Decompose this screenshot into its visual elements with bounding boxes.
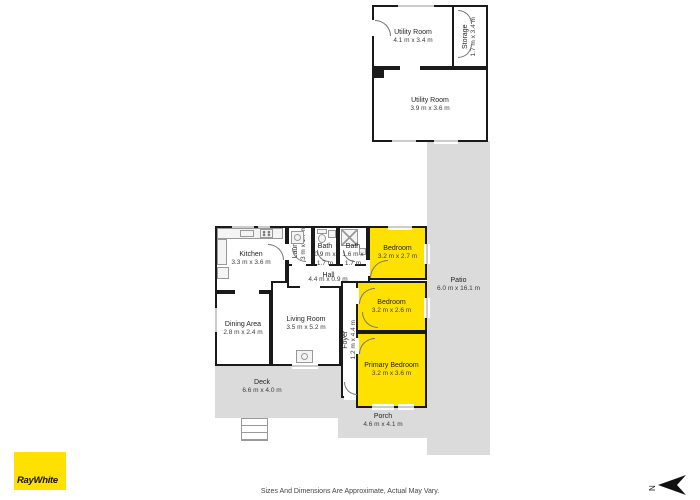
room-name: Kitchen — [231, 250, 270, 259]
raywhite-logo: RayWhite — [14, 452, 66, 490]
floorplan-canvas: Patio 6.0 m x 16.1 m Porch 4.6 m x 4.1 m… — [0, 0, 700, 500]
window — [398, 404, 414, 410]
deck-area — [215, 366, 341, 418]
room-utility-b: Utility Room 3.9 m x 3.6 m — [372, 68, 488, 142]
stove-fixture — [260, 229, 273, 238]
room-dims: 3.3 m x 3.6 m — [231, 259, 270, 267]
toilet-bowl-fixture — [318, 234, 326, 243]
sliding-door — [292, 363, 318, 369]
door-opening — [300, 284, 320, 288]
patio-area — [427, 141, 490, 455]
door-opening — [317, 262, 329, 266]
room-bedroom-2: Bedroom 3.2 m x 2.6 m — [356, 281, 427, 332]
room-name: Bedroom — [378, 244, 417, 253]
fridge-fixture — [217, 267, 229, 279]
front-door-opening — [344, 395, 356, 400]
room-dims: 4.1 m x 3.4 m — [393, 37, 432, 45]
window — [424, 244, 430, 264]
door-opening — [235, 290, 259, 294]
room-name: Bedroom — [372, 298, 411, 307]
window — [213, 308, 219, 332]
sink-fixture — [240, 230, 254, 237]
shower-fixture — [341, 229, 358, 246]
room-dining: Dining Area 2.8 m x 2.4 m — [215, 292, 271, 366]
door-opening — [285, 244, 289, 260]
window — [434, 138, 458, 144]
room-dims: 2.8 m x 2.4 m — [223, 329, 262, 337]
door-opening — [400, 66, 420, 71]
deck-stairs — [241, 418, 268, 441]
room-dims: 3.9 m x 3.6 m — [410, 105, 449, 113]
room-name: Foyer — [341, 320, 350, 359]
sink-fixture — [359, 248, 366, 255]
room-name: Hall — [322, 271, 334, 280]
room-dims: 3.5 m x 5.2 m — [286, 324, 325, 332]
north-arrow-icon: N — [645, 472, 689, 500]
wall-stub — [372, 70, 384, 78]
window — [388, 224, 412, 230]
room-utility-a: Utility Room 4.1 m x 3.4 m — [372, 5, 454, 68]
room-name: Primary Bedroom — [364, 361, 418, 370]
kitchen-side-counter — [217, 239, 227, 265]
room-dims: 3.2 m x 3.6 m — [364, 370, 418, 378]
room-name: Living Room — [286, 315, 325, 324]
room-name: Dining Area — [223, 320, 262, 329]
window — [392, 138, 416, 144]
window — [398, 3, 434, 9]
window — [424, 298, 430, 318]
door-opening — [292, 262, 306, 266]
door-opening — [343, 262, 355, 266]
svg-text:N: N — [648, 485, 657, 491]
room-name: Utility Room — [410, 96, 449, 105]
room-name: Utility Room — [393, 28, 432, 37]
washer-drum-icon — [294, 234, 301, 241]
sink-fixture — [328, 230, 336, 238]
disclaimer-text: Sizes And Dimensions Are Approximate, Ac… — [0, 488, 700, 495]
fireplace-icon — [301, 353, 308, 360]
window — [372, 404, 394, 410]
